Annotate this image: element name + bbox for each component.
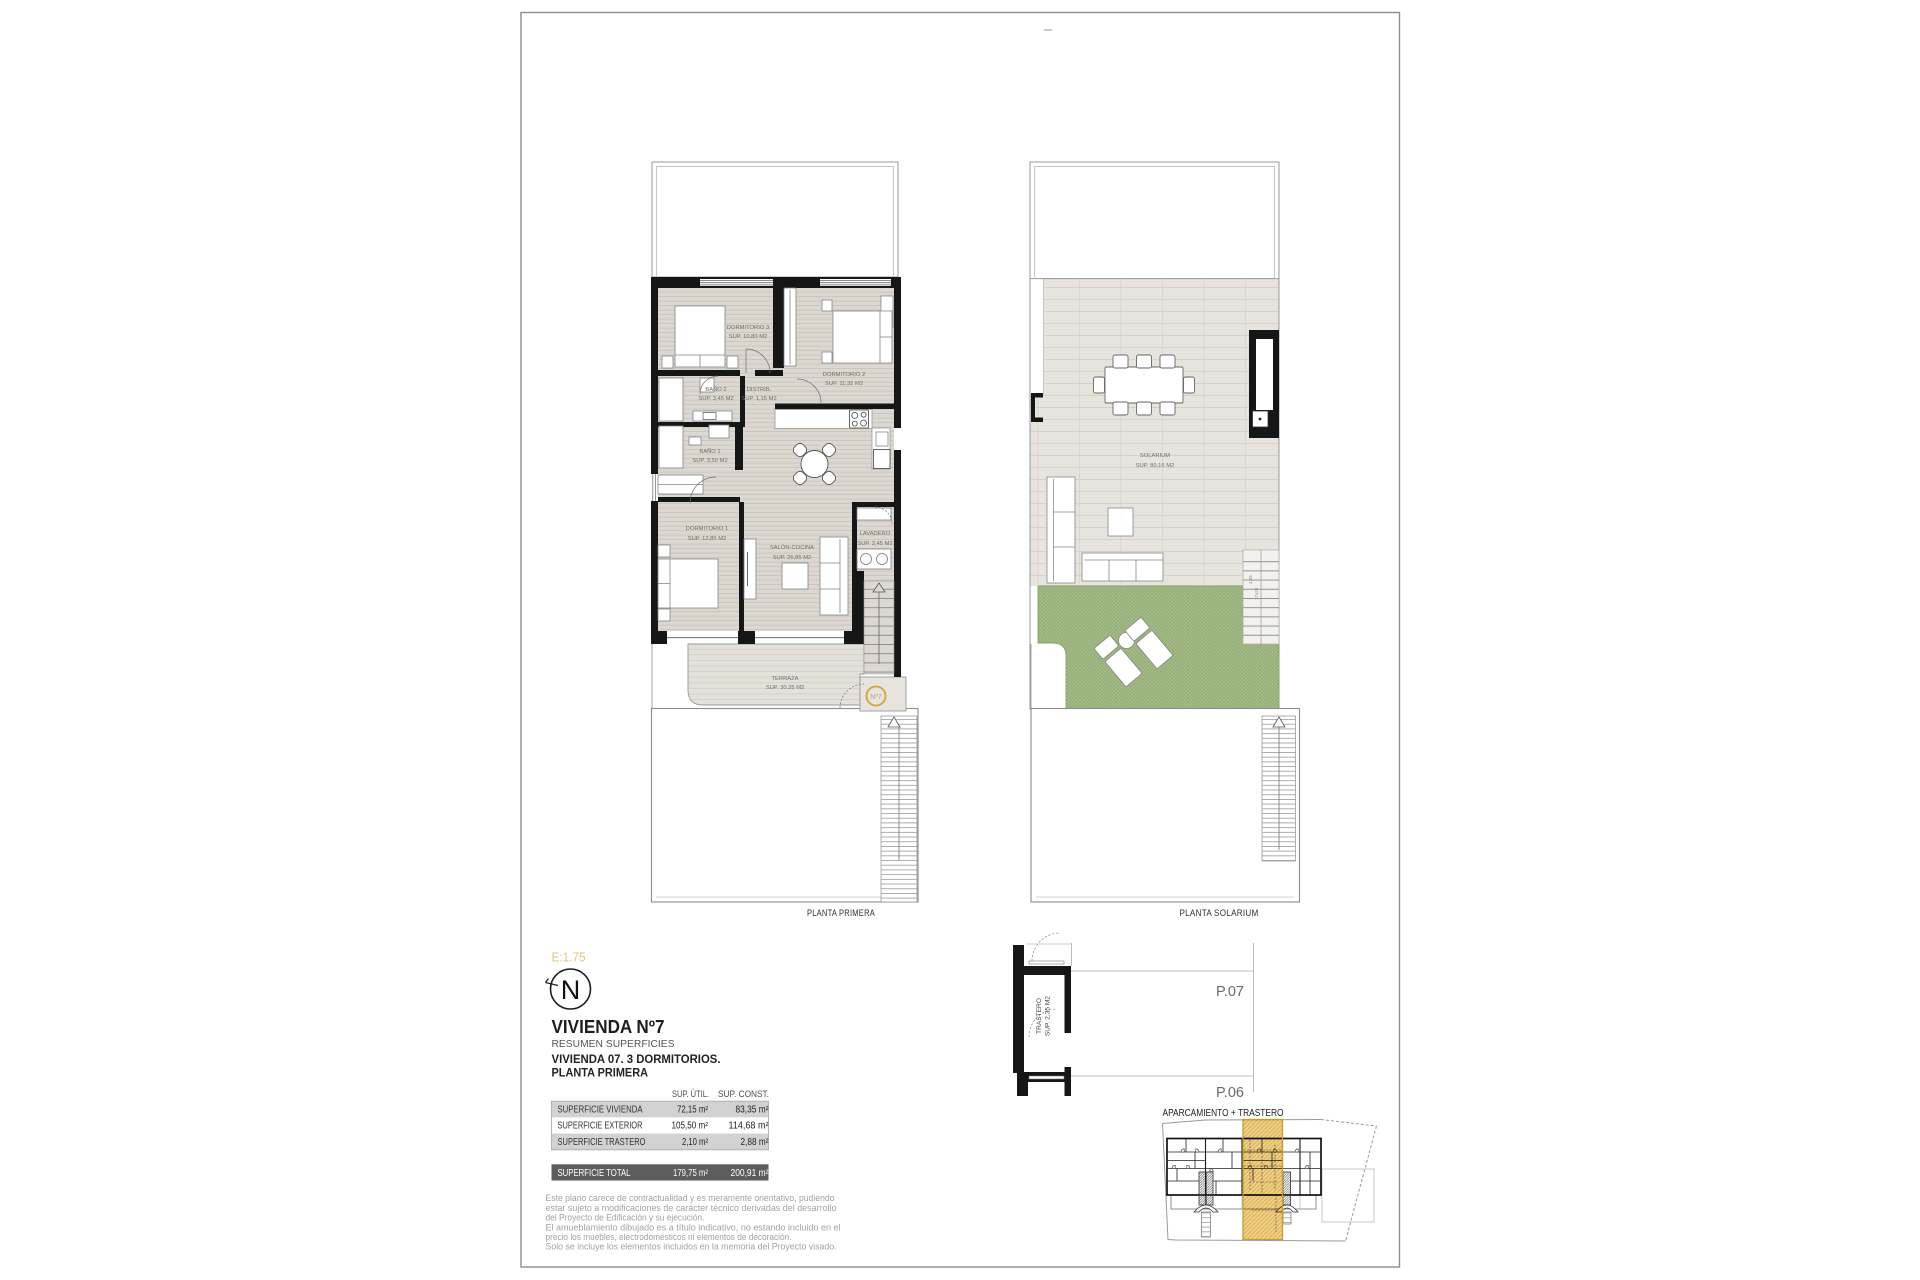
svg-text:DORMITORIO 2: DORMITORIO 2	[823, 372, 865, 378]
svg-text:179,75 m²: 179,75 m²	[673, 1168, 709, 1179]
svg-text:72,15 m²: 72,15 m²	[677, 1105, 709, 1116]
svg-text:SUP. 26,85 M2: SUP. 26,85 M2	[773, 555, 812, 561]
svg-text:SUP. 30,35 M2: SUP. 30,35 M2	[766, 685, 805, 691]
svg-text:DORMITORIO 1: DORMITORIO 1	[686, 526, 728, 532]
svg-text:P.07: P.07	[1216, 984, 1244, 1000]
svg-text:VIVIENDA 07. 3 DORMITORIOS.: VIVIENDA 07. 3 DORMITORIOS.	[552, 1052, 721, 1066]
svg-text:VIVIENDA Nº7: VIVIENDA Nº7	[552, 1017, 665, 1037]
svg-text:SUP. 3,45 M2: SUP. 3,45 M2	[698, 396, 733, 402]
svg-text:PLANTA PRIMERA: PLANTA PRIMERA	[552, 1066, 649, 1080]
svg-text:200,91 m²: 200,91 m²	[731, 1168, 770, 1179]
svg-text:SUP. 12,85 M2: SUP. 12,85 M2	[688, 536, 727, 542]
svg-text:2,88 m²: 2,88 m²	[741, 1137, 770, 1148]
svg-text:del Proyecto de Edificación y: del Proyecto de Edificación y su ejecuci…	[546, 1213, 705, 1223]
svg-text:SUP. 2,45 M2: SUP. 2,45 M2	[857, 541, 892, 547]
svg-text:SOLARIUM: SOLARIUM	[1140, 453, 1170, 459]
svg-text:precio los muebles, electrodom: precio los muebles, electrodomésticos ni…	[546, 1232, 792, 1242]
svg-text:105,50 m²: 105,50 m²	[672, 1121, 709, 1132]
svg-text:DISTRIB.: DISTRIB.	[747, 387, 772, 393]
svg-text:P.06: P.06	[1216, 1085, 1244, 1101]
svg-text:estar sujeto a modificaciones: estar sujeto a modificaciones de carácte…	[546, 1203, 837, 1213]
svg-text:SUPERFICIE EXTERIOR: SUPERFICIE EXTERIOR	[558, 1121, 643, 1132]
svg-text:Solo se incluye los elementos: Solo se incluye los elementos incluidos …	[546, 1242, 837, 1252]
svg-text:4,85: 4,85	[1248, 575, 1253, 584]
svg-text:LAVADERO: LAVADERO	[860, 531, 891, 537]
svg-text:BAÑO 2: BAÑO 2	[705, 386, 726, 393]
svg-text:83,35 m²: 83,35 m²	[736, 1105, 770, 1116]
svg-text:BAÑO 1: BAÑO 1	[699, 448, 720, 455]
svg-text:El amueblamiento dibujado es a: El amueblamiento dibujado es a título in…	[546, 1222, 841, 1232]
svg-text:PLANTA SOLARIUM: PLANTA SOLARIUM	[1180, 908, 1259, 919]
svg-text:114,68 m²: 114,68 m²	[729, 1121, 770, 1132]
svg-text:SUPERFICIE TOTAL: SUPERFICIE TOTAL	[558, 1167, 631, 1179]
svg-text:SUPERFICIE VIVIENDA: SUPERFICIE VIVIENDA	[558, 1105, 643, 1116]
svg-text:SUP. ÚTIL.: SUP. ÚTIL.	[672, 1089, 709, 1099]
svg-text:SUP. CONST.: SUP. CONST.	[718, 1089, 769, 1099]
svg-text:Nº7: Nº7	[870, 694, 882, 701]
svg-text:SUP. 11,32 M2: SUP. 11,32 M2	[825, 381, 863, 387]
svg-text:E:1.75: E:1.75	[552, 950, 586, 965]
svg-text:N: N	[561, 975, 581, 1005]
svg-text:APARCAMIENTO + TRASTERO: APARCAMIENTO + TRASTERO	[1163, 1108, 1284, 1119]
svg-text:SUP. 3,50 M2: SUP. 3,50 M2	[692, 458, 727, 464]
svg-text:SALÓN-COCINA: SALÓN-COCINA	[770, 544, 814, 551]
svg-text:RESUMEN SUPERFICIES: RESUMEN SUPERFICIES	[552, 1038, 675, 1050]
svg-text:TERRAZA: TERRAZA	[771, 676, 798, 682]
svg-text:PLANTA PRIMERA: PLANTA PRIMERA	[807, 908, 875, 919]
svg-text:DORMITORIO 3: DORMITORIO 3	[727, 325, 769, 331]
svg-text:Este plano carece de contractu: Este plano carece de contractualidad y e…	[546, 1193, 835, 1203]
svg-text:SUP. 80,16 M2: SUP. 80,16 M2	[1136, 463, 1175, 469]
svg-text:SUP. 10,80 M2: SUP. 10,80 M2	[729, 334, 768, 340]
svg-text:TRASTERO: TRASTERO	[1036, 998, 1043, 1034]
svg-text:SUPERFICIE TRASTERO: SUPERFICIE TRASTERO	[558, 1137, 646, 1148]
svg-text:SUP. 1,15 M2: SUP. 1,15 M2	[741, 396, 776, 402]
svg-text:2,10 m²: 2,10 m²	[682, 1137, 709, 1148]
svg-text:SUP. 2,35 M2: SUP. 2,35 M2	[1045, 996, 1052, 1037]
svg-text:17x28: 17x28	[1254, 587, 1259, 600]
